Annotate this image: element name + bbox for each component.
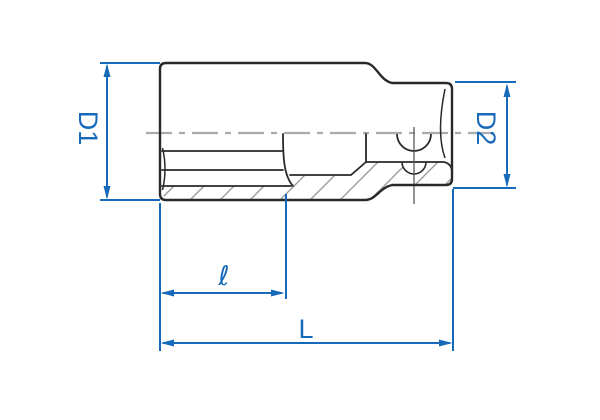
technical-drawing-canvas: D1 D2 ℓ L (0, 0, 600, 420)
section-hatch (163, 162, 452, 200)
ell-arrow-left (161, 290, 175, 297)
d1-arrow-down (104, 186, 111, 200)
drive-face-chamfer-arc (441, 89, 446, 158)
d2-arrow-down (504, 174, 511, 188)
hex-opening-chamfer-arc (163, 148, 166, 190)
socket-drawing-svg: D1 D2 ℓ L (0, 0, 600, 420)
l-arrow-left (161, 340, 175, 347)
l-label: L (298, 314, 313, 344)
d2-arrow-up (504, 84, 511, 98)
d2-label: D2 (471, 111, 501, 146)
pilot-step-line (290, 162, 366, 175)
l-arrow-right (439, 340, 453, 347)
ell-arrow-right (271, 290, 285, 297)
ell-label: ℓ (217, 261, 229, 292)
dimension-d1 (100, 63, 160, 200)
d1-label: D1 (73, 111, 103, 146)
d1-arrow-up (104, 64, 111, 78)
